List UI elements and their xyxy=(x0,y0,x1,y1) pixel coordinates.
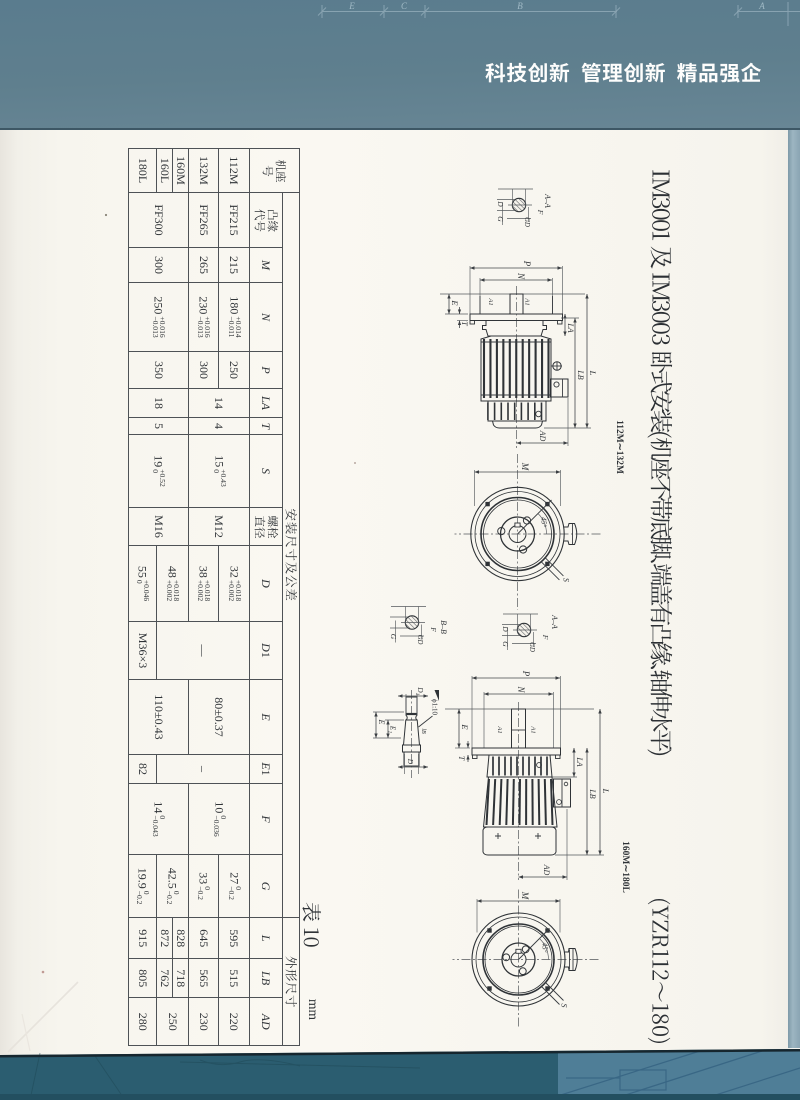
svg-text:E: E xyxy=(377,719,386,725)
svg-text:D: D xyxy=(501,625,510,632)
svg-text:A1: A1 xyxy=(530,725,537,733)
svg-text:LA: LA xyxy=(566,322,575,332)
svg-text:E: E xyxy=(348,1,355,11)
svg-text:F: F xyxy=(536,209,545,215)
svg-text:D: D xyxy=(496,200,505,207)
svg-text:L: L xyxy=(601,788,611,794)
svg-text:T: T xyxy=(457,756,466,761)
svg-text:A1: A1 xyxy=(524,297,531,305)
svg-text:1: 1 xyxy=(387,731,392,734)
svg-text:E: E xyxy=(460,723,470,730)
svg-text:N: N xyxy=(516,685,526,693)
svg-text:lB: lB xyxy=(420,728,426,734)
svg-text:G: G xyxy=(389,634,398,640)
svg-text:P: P xyxy=(522,260,532,267)
svg-text:D: D xyxy=(406,758,415,765)
svg-text:A–A: A–A xyxy=(550,614,559,629)
svg-text:A1: A1 xyxy=(487,297,494,305)
svg-text:M: M xyxy=(520,891,530,900)
svg-text:AD: AD xyxy=(542,864,551,876)
svg-text:F: F xyxy=(429,626,438,632)
svg-text:112M∼132M: 112M∼132M xyxy=(614,420,624,474)
svg-text:LB: LB xyxy=(576,369,585,379)
svg-text:N: N xyxy=(516,272,526,280)
svg-text:B: B xyxy=(517,1,523,11)
svg-text:AD: AD xyxy=(538,430,547,442)
svg-text:F: F xyxy=(541,634,550,640)
svg-text:M: M xyxy=(520,462,530,471)
svg-text:P: P xyxy=(521,670,531,677)
svg-text:S: S xyxy=(561,578,570,582)
svg-text:45°: 45° xyxy=(540,517,548,527)
svg-text:B–B: B–B xyxy=(439,620,448,634)
svg-text:GD: GD xyxy=(416,635,423,645)
svg-text:L: L xyxy=(588,370,598,376)
svg-text:A–A: A–A xyxy=(543,193,552,208)
svg-text:T: T xyxy=(460,321,469,326)
svg-text:LA: LA xyxy=(575,756,584,766)
svg-text:160M∼180L: 160M∼180L xyxy=(620,841,630,893)
svg-text:E: E xyxy=(450,299,460,306)
svg-text:LB: LB xyxy=(588,788,597,798)
svg-text:S: S xyxy=(559,1003,568,1007)
svg-text:GD: GD xyxy=(523,217,530,227)
svg-text:G: G xyxy=(501,641,510,647)
svg-text:ϕ1:10: ϕ1:10 xyxy=(431,699,439,716)
svg-text:G: G xyxy=(496,216,505,222)
svg-text:A: A xyxy=(758,1,765,11)
svg-text:GD: GD xyxy=(528,642,535,652)
svg-text:45°: 45° xyxy=(541,943,549,953)
svg-text:C: C xyxy=(401,1,408,11)
svg-text:A1: A1 xyxy=(496,725,503,733)
